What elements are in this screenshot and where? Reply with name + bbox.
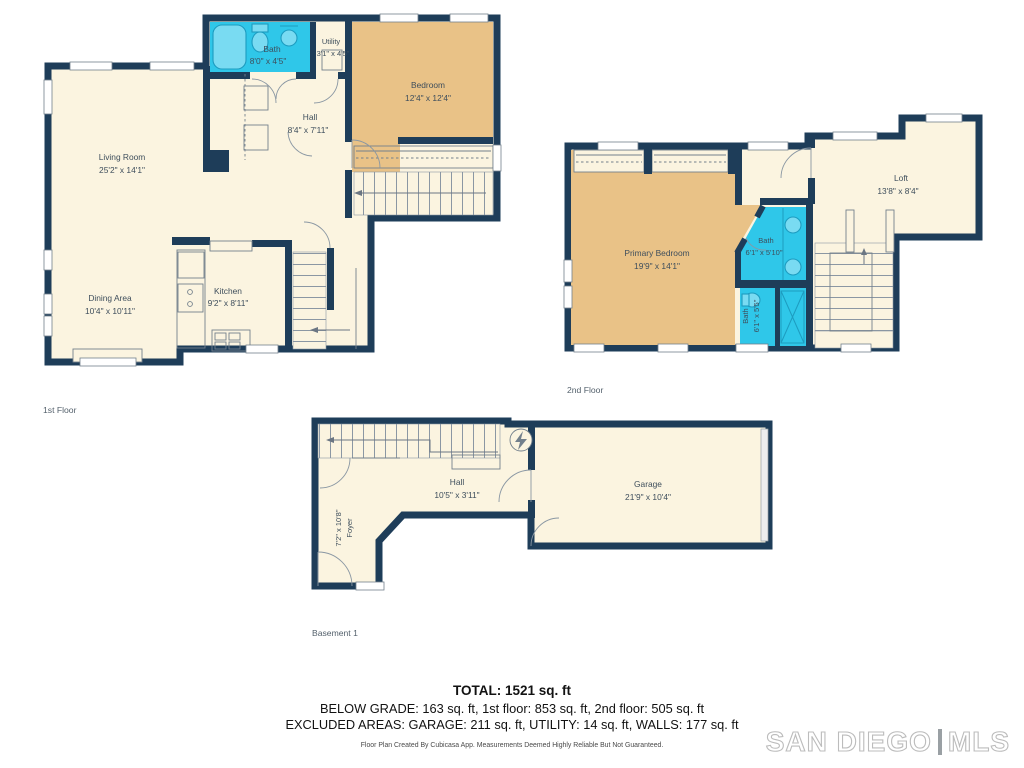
second-floor-plan: Primary Bedroom 19'9" x 14'1" Bath 6'1" … <box>564 114 979 395</box>
room-dims: 10'5" x 3'11" <box>434 490 479 500</box>
room-label: Hall <box>303 112 318 122</box>
room-dims: 12'4" x 12'4" <box>405 93 451 103</box>
first-floor-plan: Living Room 25'2" x 14'1" Dining Area 10… <box>43 14 501 415</box>
floor-label-1st: 1st Floor <box>43 405 77 415</box>
room-dims: 9'2" x 8'11" <box>208 298 249 308</box>
sink <box>785 259 801 275</box>
sink <box>785 217 801 233</box>
room-dims: 13'8" x 8'4" <box>877 186 918 196</box>
floor-plan-drawing: Living Room 25'2" x 14'1" Dining Area 10… <box>0 0 1024 768</box>
room-label: Foyer <box>345 518 354 538</box>
room-label: Utility <box>322 37 341 46</box>
room-label: Loft <box>894 173 909 183</box>
room-label: Bath <box>741 308 750 323</box>
logo-left-text: SAN DIEGO <box>766 726 932 758</box>
logo-right-text: MLS <box>948 726 1010 758</box>
room-label: Hall <box>450 477 465 487</box>
room-label: Bedroom <box>411 80 445 90</box>
basement-plan: Foyer 7'2" x 10'8" Hall 10'5" x 3'11" Ga… <box>312 421 769 638</box>
window-b1 <box>356 582 384 590</box>
room-label: Garage <box>634 479 662 489</box>
room-label: Primary Bedroom <box>624 248 689 258</box>
total-area: TOTAL: 1521 sq. ft <box>0 683 1024 698</box>
room-dims: 8'0" x 4'5" <box>250 56 287 66</box>
room-label: Bath <box>263 44 281 54</box>
room-dims: 21'9" x 10'4" <box>625 492 671 502</box>
room-dims: 8'4" x 7'11" <box>288 125 329 135</box>
floor-label-2nd: 2nd Floor <box>567 385 603 395</box>
electrical-symbol <box>510 429 532 451</box>
sink <box>281 30 297 46</box>
floor-label-basement: Basement 1 <box>312 628 358 638</box>
room-dims: 10'4" x 10'11" <box>85 306 135 316</box>
floor-plan-page: Living Room 25'2" x 14'1" Dining Area 10… <box>0 0 1024 768</box>
room-label: Living Room <box>99 152 146 162</box>
room-dims: 6'1" x 5'10" <box>746 248 783 257</box>
room-dims: 25'2" x 14'1" <box>99 165 145 175</box>
logo-divider <box>938 729 942 755</box>
room-label: Bath <box>758 236 773 245</box>
room-label: Kitchen <box>214 286 242 296</box>
area-breakdown: BELOW GRADE: 163 sq. ft, 1st floor: 853 … <box>0 701 1024 716</box>
room-dims: 7'2" x 10'8" <box>334 509 343 546</box>
room-dims: 6'1" x 5'5" <box>752 299 761 332</box>
garage-door <box>761 429 768 541</box>
stairs-up-1f <box>354 172 493 215</box>
room-dims: 3'1" x 4'5" <box>317 49 350 58</box>
san-diego-mls-logo: SAN DIEGO MLS <box>766 726 1010 758</box>
room-label: Dining Area <box>88 293 132 303</box>
bathtub <box>213 25 246 69</box>
room-dims: 19'9" x 14'1" <box>634 261 680 271</box>
